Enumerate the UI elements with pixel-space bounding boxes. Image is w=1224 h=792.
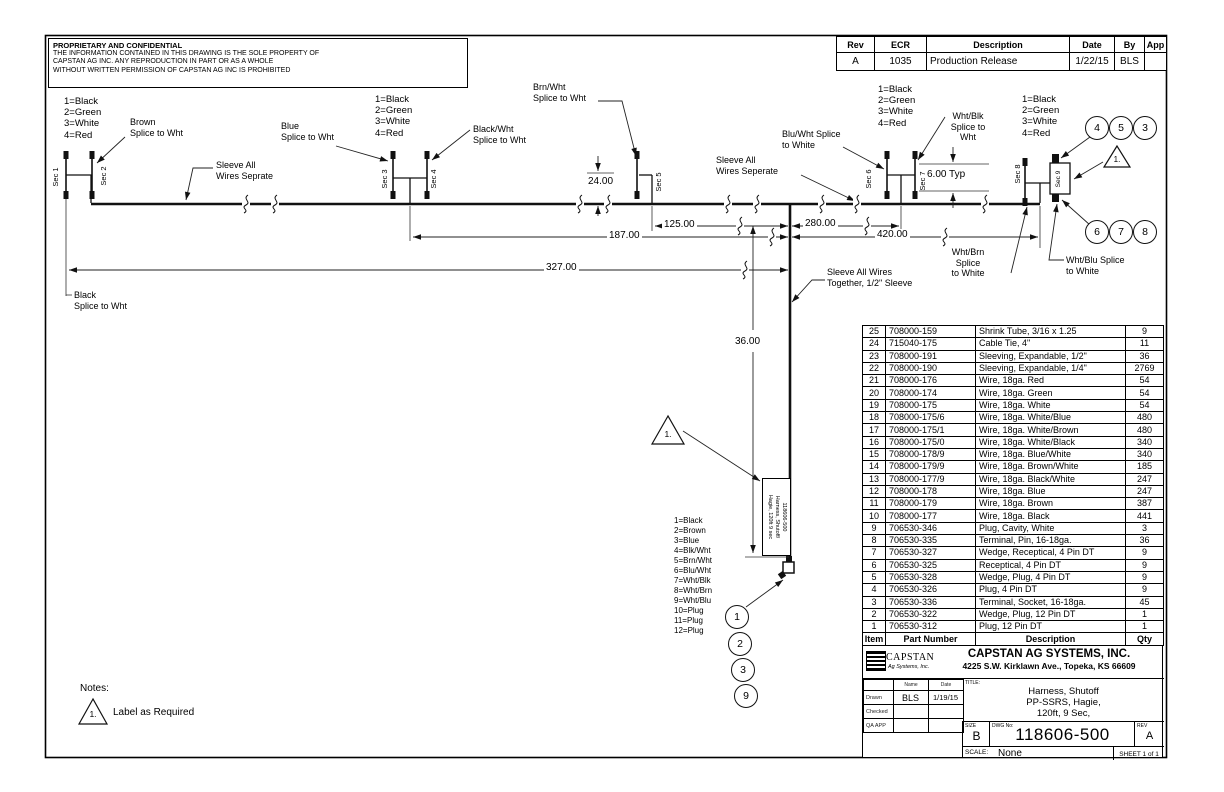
section-label-sec-9: Sec 9 <box>1055 159 1065 199</box>
legend-line: 4=Red <box>375 128 412 139</box>
bottom-connector <box>778 556 794 579</box>
name-col-header: Name <box>894 680 929 691</box>
part-qty: 36 <box>1126 535 1164 547</box>
legend-line: 1=Black <box>878 84 915 95</box>
by-col-header: By <box>1115 37 1145 53</box>
dimension-187: 187.00 <box>607 230 642 241</box>
splice-label-blu-wht: Blu/Wht Splice to White <box>782 129 841 150</box>
part-item: 21 <box>863 375 886 387</box>
ecr-col-header: ECR <box>875 37 927 53</box>
part-item: 15 <box>863 448 886 460</box>
part-description: Wire, 18ga. Black <box>976 510 1126 522</box>
legend-sec6-7: 1=Black2=Green3=White4=Red <box>878 84 915 129</box>
part-description: Wire, 18ga. Brown/White <box>976 461 1126 473</box>
dwg-number: 118606-500 <box>990 725 1135 745</box>
part-item: 12 <box>863 485 886 497</box>
revision-row: A 1035 Production Release 1/22/15 BLS <box>837 53 1167 71</box>
part-qty: 9 <box>1126 584 1164 596</box>
part-item: 10 <box>863 510 886 522</box>
part-row: 15 708000-178/9 Wire, 18ga. Blue/White 3… <box>863 448 1164 460</box>
title-block-empty-cell <box>863 721 963 758</box>
part-qty: 9 <box>1126 326 1164 338</box>
part-number: 706530-336 <box>886 596 976 608</box>
approval-name: BLS <box>894 691 929 705</box>
splice-label-black: Black Splice to Wht <box>74 290 127 311</box>
part-number: 706530-312 <box>886 621 976 633</box>
approval-date <box>929 705 964 719</box>
part-number: 708000-191 <box>886 350 976 362</box>
part-row: 9 706530-346 Plug, Cavity, White 3 <box>863 522 1164 534</box>
sleeve-label-together: Sleeve All Wires Together, 1/2" Sleeve <box>827 267 912 288</box>
legend-line: 3=White <box>375 116 412 127</box>
part-number: 708000-175/6 <box>886 412 976 424</box>
part-item: 11 <box>863 498 886 510</box>
dwg-cell: DWG No: 118606-500 <box>990 722 1135 747</box>
part-row: 2 706530-322 Wedge, Plug, 12 Pin DT 1 <box>863 608 1164 620</box>
part-description: Wedge, Receptical, 4 Pin DT <box>976 547 1126 559</box>
approval-row: Checked <box>864 705 964 719</box>
dimension-24: 24.00 <box>586 176 615 187</box>
legend-line: 4=Red <box>878 118 915 129</box>
title-cell: TITLE: Harness, Shutoff PP-SSRS, Hagie, … <box>963 679 1164 721</box>
part-item: 17 <box>863 424 886 436</box>
part-description: Terminal, Pin, 16-18ga. <box>976 535 1126 547</box>
legend-line: 4=Red <box>64 130 101 141</box>
part-qty: 9 <box>1126 559 1164 571</box>
part-qty: 340 <box>1126 436 1164 448</box>
legend-line: 1=Black <box>64 96 101 107</box>
approval-header-row: Name Date <box>864 680 964 691</box>
part-qty: 1 <box>1126 621 1164 633</box>
part-row: 14 708000-179/9 Wire, 18ga. Brown/White … <box>863 461 1164 473</box>
part-row: 21 708000-176 Wire, 18ga. Red 54 <box>863 375 1164 387</box>
section-label-sec-1: Sec 1 <box>51 157 61 197</box>
scale-row: SCALE: None SHEET 1 of 1 <box>963 746 1164 759</box>
pin-legend-line: 2=Brown <box>674 526 712 536</box>
capstan-logo: CAPSTAN Ag Systems, Inc. <box>866 648 938 677</box>
part-description: Wire, 18ga. Green <box>976 387 1126 399</box>
part-item: 22 <box>863 362 886 374</box>
part-item: 9 <box>863 522 886 534</box>
part-number: 708000-159 <box>886 326 976 338</box>
legend-line: 1=Black <box>375 94 412 105</box>
title-block: CAPSTAN Ag Systems, Inc. CAPSTAN AG SYST… <box>862 645 1163 758</box>
part-qty: 9 <box>1126 547 1164 559</box>
dimension-125: 125.00 <box>662 219 697 230</box>
legend-line: 2=Green <box>1022 105 1059 116</box>
part-description: Plug, 4 Pin DT <box>976 584 1126 596</box>
scale-label: SCALE: <box>965 749 988 756</box>
part-row: 17 708000-175/1 Wire, 18ga. White/Brown … <box>863 424 1164 436</box>
part-description: Wire, 18ga. White/Brown <box>976 424 1126 436</box>
legend-line: 3=White <box>1022 116 1059 127</box>
legend-sec8-9: 1=Black2=Green3=White4=Red <box>1022 94 1059 139</box>
pin-legend-line: 5=Brn/Wht <box>674 556 712 566</box>
section-label-sec-4: Sec 4 <box>429 159 439 199</box>
part-qty: 54 <box>1126 387 1164 399</box>
part-number: 708000-175/1 <box>886 424 976 436</box>
part-description: Wedge, Plug, 12 Pin DT <box>976 608 1126 620</box>
part-description: Plug, Cavity, White <box>976 522 1126 534</box>
balloon: 3 <box>731 658 755 682</box>
company-block: CAPSTAN AG SYSTEMS, INC. 4225 S.W. Kirkl… <box>935 648 1163 672</box>
approval-role: Checked <box>864 705 894 719</box>
pin-legend-line: 11=Plug <box>674 616 712 626</box>
part-qty: 3 <box>1126 522 1164 534</box>
dimension-327: 327.00 <box>544 262 579 273</box>
legend-line: 2=Green <box>878 95 915 106</box>
part-qty: 247 <box>1126 485 1164 497</box>
proprietary-title: PROPRIETARY AND CONFIDENTIAL <box>53 41 463 50</box>
sleeve-label-separate-right: Sleeve All Wires Seperate <box>716 155 778 176</box>
section-label-sec-3: Sec 3 <box>380 159 390 199</box>
part-description: Sleeving, Expandable, 1/4" <box>976 362 1126 374</box>
capstan-logo-subtitle: Ag Systems, Inc. <box>888 664 929 670</box>
size-value: B <box>963 729 990 743</box>
flag-note-notes: 1. <box>85 709 101 719</box>
part-item: 1 <box>863 621 886 633</box>
part-row: 6 706530-325 Receptical, 4 Pin DT 9 <box>863 559 1164 571</box>
size-dwg-rev-row: SIZE B DWG No: 118606-500 REV A <box>963 721 1164 746</box>
part-item: 19 <box>863 399 886 411</box>
part-number: 706530-325 <box>886 559 976 571</box>
harness-tag-box: 118606-500 Harness, Shutoff/ Hagie, 120f… <box>762 478 791 556</box>
part-row: 24 715040-175 Cable Tie, 4" 11 <box>863 338 1164 350</box>
part-row: 18 708000-175/6 Wire, 18ga. White/Blue 4… <box>863 412 1164 424</box>
title-block-logo-row: CAPSTAN Ag Systems, Inc. CAPSTAN AG SYST… <box>863 646 1164 679</box>
flag-note-mid: 1. <box>660 429 676 439</box>
pin-legend-line: 1=Black <box>674 516 712 526</box>
part-description: Receptical, 4 Pin DT <box>976 559 1126 571</box>
pin-legend-line: 7=Wht/Blk <box>674 576 712 586</box>
part-item: 5 <box>863 571 886 583</box>
size-cell: SIZE B <box>963 722 990 747</box>
pin-legend-line: 12=Plug <box>674 626 712 636</box>
dimension-420: 420.00 <box>875 229 910 240</box>
part-description: Wire, 18ga. White/Blue <box>976 412 1126 424</box>
revision-header-row: Rev ECR Description Date By App <box>837 37 1167 53</box>
balloons-right: 678 <box>1085 220 1157 244</box>
part-item: 25 <box>863 326 886 338</box>
pin-legend-line: 4=Blk/Wht <box>674 546 712 556</box>
rev-value: A <box>1135 730 1164 742</box>
part-qty: 247 <box>1126 473 1164 485</box>
part-qty: 185 <box>1126 461 1164 473</box>
part-description: Wire, 18ga. Red <box>976 375 1126 387</box>
part-number: 708000-190 <box>886 362 976 374</box>
part-number: 708000-178 <box>886 485 976 497</box>
part-item: 23 <box>863 350 886 362</box>
part-row: 19 708000-175 Wire, 18ga. White 54 <box>863 399 1164 411</box>
part-item: 8 <box>863 535 886 547</box>
company-address: 4225 S.W. Kirklawn Ave., Topeka, KS 6660… <box>935 661 1163 672</box>
legend-sec1-2: 1=Black2=Green3=White4=Red <box>64 96 101 141</box>
part-number: 708000-178/9 <box>886 448 976 460</box>
part-number: 708000-176 <box>886 375 976 387</box>
approval-name <box>894 705 929 719</box>
splice-label-black-wht: Black/Wht Splice to Wht <box>473 124 526 145</box>
revision-table: Rev ECR Description Date By App A 1035 P… <box>836 36 1167 71</box>
balloon: 8 <box>1133 220 1157 244</box>
part-row: 20 708000-174 Wire, 18ga. Green 54 <box>863 387 1164 399</box>
drawing-title: Harness, Shutoff PP-SSRS, Hagie, 120ft, … <box>963 686 1164 719</box>
part-row: 22 708000-190 Sleeving, Expandable, 1/4"… <box>863 362 1164 374</box>
parts-header-row: Item Part Number Description Qty <box>863 633 1164 645</box>
capstan-logo-icon <box>866 651 886 671</box>
part-item: 3 <box>863 596 886 608</box>
section-label-sec-8: Sec 8 <box>1013 154 1023 194</box>
part-row: 16 708000-175/0 Wire, 18ga. White/Black … <box>863 436 1164 448</box>
part-qty: 45 <box>1126 596 1164 608</box>
legend-sec3-4: 1=Black2=Green3=White4=Red <box>375 94 412 139</box>
pin-legend: 1=Black2=Brown3=Blue4=Blk/Wht5=Brn/Wht6=… <box>674 516 712 636</box>
balloon: 7 <box>1109 220 1133 244</box>
part-description: Terminal, Socket, 16-18ga. <box>976 596 1126 608</box>
part-row: 13 708000-177/9 Wire, 18ga. Black/White … <box>863 473 1164 485</box>
part-number: 708000-174 <box>886 387 976 399</box>
part-item: 20 <box>863 387 886 399</box>
part-description: Wedge, Plug, 4 Pin DT <box>976 571 1126 583</box>
part-item: 24 <box>863 338 886 350</box>
scale-value: None <box>998 748 1022 759</box>
part-description: Sleeving, Expandable, 1/2" <box>976 350 1126 362</box>
legend-line: 4=Red <box>1022 128 1059 139</box>
proprietary-notice: PROPRIETARY AND CONFIDENTIAL THE INFORMA… <box>48 38 468 88</box>
pin-legend-line: 9=Wht/Blu <box>674 596 712 606</box>
date-col-header: Date <box>929 680 964 691</box>
part-qty: 480 <box>1126 424 1164 436</box>
balloon: 9 <box>734 684 758 708</box>
part-description: Wire, 18ga. Blue <box>976 485 1126 497</box>
balloon: 4 <box>1085 116 1109 140</box>
part-number: 708000-177/9 <box>886 473 976 485</box>
part-description: Wire, 18ga. Brown <box>976 498 1126 510</box>
part-row: 8 706530-335 Terminal, Pin, 16-18ga. 36 <box>863 535 1164 547</box>
balloon: 1 <box>725 605 749 629</box>
part-row: 4 706530-326 Plug, 4 Pin DT 9 <box>863 584 1164 596</box>
part-qty: 441 <box>1126 510 1164 522</box>
balloon: 2 <box>728 632 752 656</box>
dimension-280: 280.00 <box>803 218 838 229</box>
part-number: 706530-328 <box>886 571 976 583</box>
splice-label-brn-wht: Brn/Wht Splice to Wht <box>533 82 586 103</box>
part-number: 706530-326 <box>886 584 976 596</box>
balloon: 6 <box>1085 220 1109 244</box>
part-item: 18 <box>863 412 886 424</box>
part-qty: 387 <box>1126 498 1164 510</box>
part-number: 706530-327 <box>886 547 976 559</box>
part-number: 706530-335 <box>886 535 976 547</box>
part-qty: 340 <box>1126 448 1164 460</box>
part-qty: 1 <box>1126 608 1164 620</box>
splice-label-wht-blu: Wht/Blu Splice to White <box>1066 255 1125 276</box>
splice-label-blue: Blue Splice to Wht <box>281 121 334 142</box>
date-col-header: Date <box>1070 37 1115 53</box>
part-qty: 480 <box>1126 412 1164 424</box>
part-description: Wire, 18ga. Black/White <box>976 473 1126 485</box>
part-item: 13 <box>863 473 886 485</box>
part-qty: 54 <box>1126 375 1164 387</box>
legend-line: 3=White <box>878 106 915 117</box>
part-row: 1 706530-312 Plug, 12 Pin DT 1 <box>863 621 1164 633</box>
approval-role: Drawn <box>864 691 894 705</box>
part-qty: 11 <box>1126 338 1164 350</box>
part-number: 708000-179 <box>886 498 976 510</box>
section-label-sec-5: Sec 5 <box>654 162 664 202</box>
part-description: Wire, 18ga. White/Black <box>976 436 1126 448</box>
proprietary-body: THE INFORMATION CONTAINED IN THIS DRAWIN… <box>53 50 463 75</box>
part-item: 4 <box>863 584 886 596</box>
part-qty: 2769 <box>1126 362 1164 374</box>
part-description: Shrink Tube, 3/16 x 1.25 <box>976 326 1126 338</box>
part-row: 11 708000-179 Wire, 18ga. Brown 387 <box>863 498 1164 510</box>
flag-note-top: 1. <box>1109 155 1125 164</box>
pin-legend-line: 10=Plug <box>674 606 712 616</box>
splice-label-wht-blk: Wht/Blk Splice to Wht <box>941 111 995 143</box>
part-qty: 54 <box>1126 399 1164 411</box>
part-number: 708000-175 <box>886 399 976 411</box>
parts-table: 25 708000-159 Shrink Tube, 3/16 x 1.25 9… <box>862 325 1164 646</box>
part-row: 5 706530-328 Wedge, Plug, 4 Pin DT 9 <box>863 571 1164 583</box>
legend-line: 2=Green <box>375 105 412 116</box>
part-item: 2 <box>863 608 886 620</box>
part-number: 706530-346 <box>886 522 976 534</box>
splice-label-wht-brn: Wht/Brn Splice to White <box>941 247 995 279</box>
part-number: 706530-322 <box>886 608 976 620</box>
legend-line: 3=White <box>64 118 101 129</box>
harness-tag-text: 118606-500 Harness, Shutoff/ Hagie, 120f… <box>766 480 786 554</box>
part-number: 708000-177 <box>886 510 976 522</box>
splice-label-brown: Brown Splice to Wht <box>130 117 183 138</box>
capstan-logo-name: CAPSTAN <box>886 652 934 663</box>
part-row: 10 708000-177 Wire, 18ga. Black 441 <box>863 510 1164 522</box>
part-row: 7 706530-327 Wedge, Receptical, 4 Pin DT… <box>863 547 1164 559</box>
balloons-top: 453 <box>1085 116 1157 140</box>
sleeve-label-separate-left: Sleeve All Wires Seprate <box>216 160 273 181</box>
pin-legend-line: 6=Blu/Wht <box>674 566 712 576</box>
rev-col-header: Rev <box>837 37 875 53</box>
company-name: CAPSTAN AG SYSTEMS, INC. <box>935 648 1163 661</box>
section-label-sec-7: Sec 7 <box>918 161 928 201</box>
part-qty: 36 <box>1126 350 1164 362</box>
section-label-sec-2: Sec 2 <box>99 156 109 196</box>
notes-heading: Notes: <box>80 683 109 694</box>
part-row: 25 708000-159 Shrink Tube, 3/16 x 1.25 9 <box>863 326 1164 338</box>
part-row: 12 708000-178 Wire, 18ga. Blue 247 <box>863 485 1164 497</box>
part-row: 3 706530-336 Terminal, Socket, 16-18ga. … <box>863 596 1164 608</box>
part-row: 23 708000-191 Sleeving, Expandable, 1/2"… <box>863 350 1164 362</box>
approval-row: Drawn BLS 1/19/15 <box>864 691 964 705</box>
pin-legend-line: 8=Wht/Brn <box>674 586 712 596</box>
section-label-sec-6: Sec 6 <box>864 159 874 199</box>
dimension-6-typ: 6.00 Typ <box>925 169 967 180</box>
approval-date: 1/19/15 <box>929 691 964 705</box>
legend-line: 1=Black <box>1022 94 1059 105</box>
part-qty: 9 <box>1126 571 1164 583</box>
part-description: Cable Tie, 4" <box>976 338 1126 350</box>
part-number: 708000-175/0 <box>886 436 976 448</box>
description-col-header: Description <box>927 37 1070 53</box>
drawing-sheet: PROPRIETARY AND CONFIDENTIAL THE INFORMA… <box>0 0 1224 792</box>
legend-line: 2=Green <box>64 107 101 118</box>
sheet-number: SHEET 1 of 1 <box>1113 747 1164 760</box>
rev-cell: REV A <box>1135 722 1164 747</box>
pin-legend-line: 3=Blue <box>674 536 712 546</box>
part-description: Wire, 18ga. White <box>976 399 1126 411</box>
note-1-text: Label as Required <box>113 707 194 718</box>
part-item: 7 <box>863 547 886 559</box>
part-number: 708000-179/9 <box>886 461 976 473</box>
part-item: 14 <box>863 461 886 473</box>
part-item: 16 <box>863 436 886 448</box>
dimension-36: 36.00 <box>733 336 762 347</box>
part-description: Plug, 12 Pin DT <box>976 621 1126 633</box>
part-description: Wire, 18ga. Blue/White <box>976 448 1126 460</box>
part-item: 6 <box>863 559 886 571</box>
part-number: 715040-175 <box>886 338 976 350</box>
rev-label: REV <box>1137 723 1147 729</box>
balloon: 3 <box>1133 116 1157 140</box>
app-col-header: App <box>1145 37 1167 53</box>
balloon: 5 <box>1109 116 1133 140</box>
